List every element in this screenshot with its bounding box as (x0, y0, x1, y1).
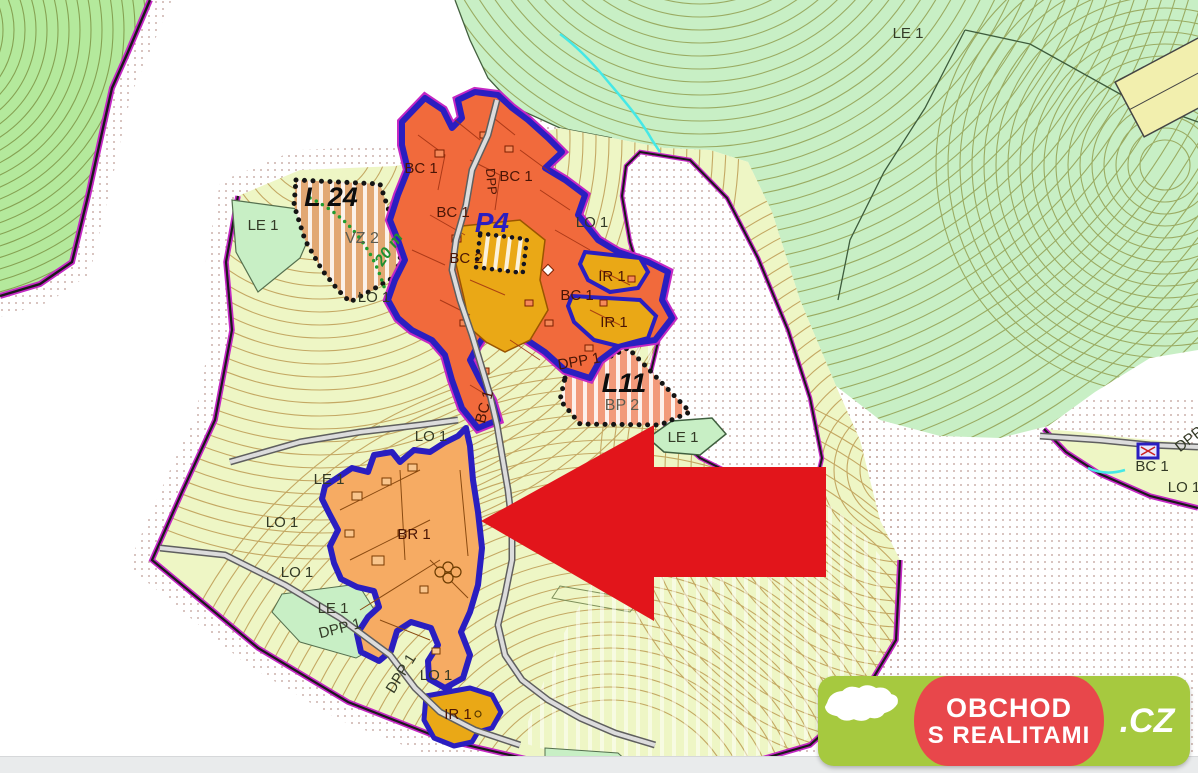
zone-label-lo1-c: LO 1 (415, 428, 448, 445)
zone-bc2-dotted-rect (476, 233, 527, 272)
zone-label-le1-left: LE 1 (248, 217, 279, 234)
zone-label-le1-d: LE 1 (314, 471, 345, 488)
logo-line1: OBCHOD (946, 694, 1072, 722)
zone-label-lo1-mid: LO 1 (576, 214, 609, 231)
zone-label-lo1-left: LO 1 (358, 289, 391, 306)
map-canvas: LE 1 L 24 VZ 2 20 m LE 1 LO 1 BC 1 BC 1 … (0, 0, 1198, 773)
zone-label-l11: L11 (602, 368, 647, 398)
zone-label-bc1-a: BC 1 (404, 160, 437, 177)
zone-label-br1: BR 1 (397, 526, 430, 543)
zone-label-lo1-right: LO 1 (1168, 479, 1198, 496)
zone-label-vz2: VZ 2 (345, 230, 379, 247)
zone-label-bc1-d: BC 1 (560, 287, 593, 304)
zone-label-ir1-bottom: IR 1 (444, 706, 472, 723)
zone-label-bc1-c: BC 1 (436, 204, 469, 221)
marker-building-right (1138, 444, 1158, 458)
zone-label-le1-topright: LE 1 (893, 25, 924, 42)
zone-label-lo1-e: LO 1 (281, 564, 314, 581)
logo-text-block: OBCHOD S REALITAMI (914, 676, 1104, 766)
zone-label-lo1-f: LO 1 (420, 667, 453, 684)
logo-czech-map-icon (818, 676, 914, 766)
zone-label-bp2: BP 2 (605, 397, 640, 414)
zone-label-le1-mid: LE 1 (668, 429, 699, 446)
map-screenshot: LE 1 L 24 VZ 2 20 m LE 1 LO 1 BC 1 BC 1 … (0, 0, 1198, 773)
zone-label-bc1-right: BC 1 (1135, 458, 1168, 475)
zone-label-dpp-vertical: DPP (483, 168, 500, 196)
zone-label-l24: L 24 (304, 182, 358, 212)
brand-logo[interactable]: OBCHOD S REALITAMI .CZ (818, 676, 1190, 766)
zone-label-bc2: BC 2 (449, 250, 482, 267)
logo-tld: .CZ (1104, 676, 1190, 766)
logo-line2: S REALITAMI (928, 723, 1091, 748)
zone-label-lo1-d: LO 1 (266, 514, 299, 531)
zone-label-bc1-b: BC 1 (499, 168, 532, 185)
zone-label-p4: P4 (475, 207, 510, 238)
zone-label-ir1-top: IR 1 (598, 268, 626, 285)
zone-label-ir1-mid: IR 1 (600, 314, 628, 331)
zone-label-le1-e: LE 1 (318, 600, 349, 617)
